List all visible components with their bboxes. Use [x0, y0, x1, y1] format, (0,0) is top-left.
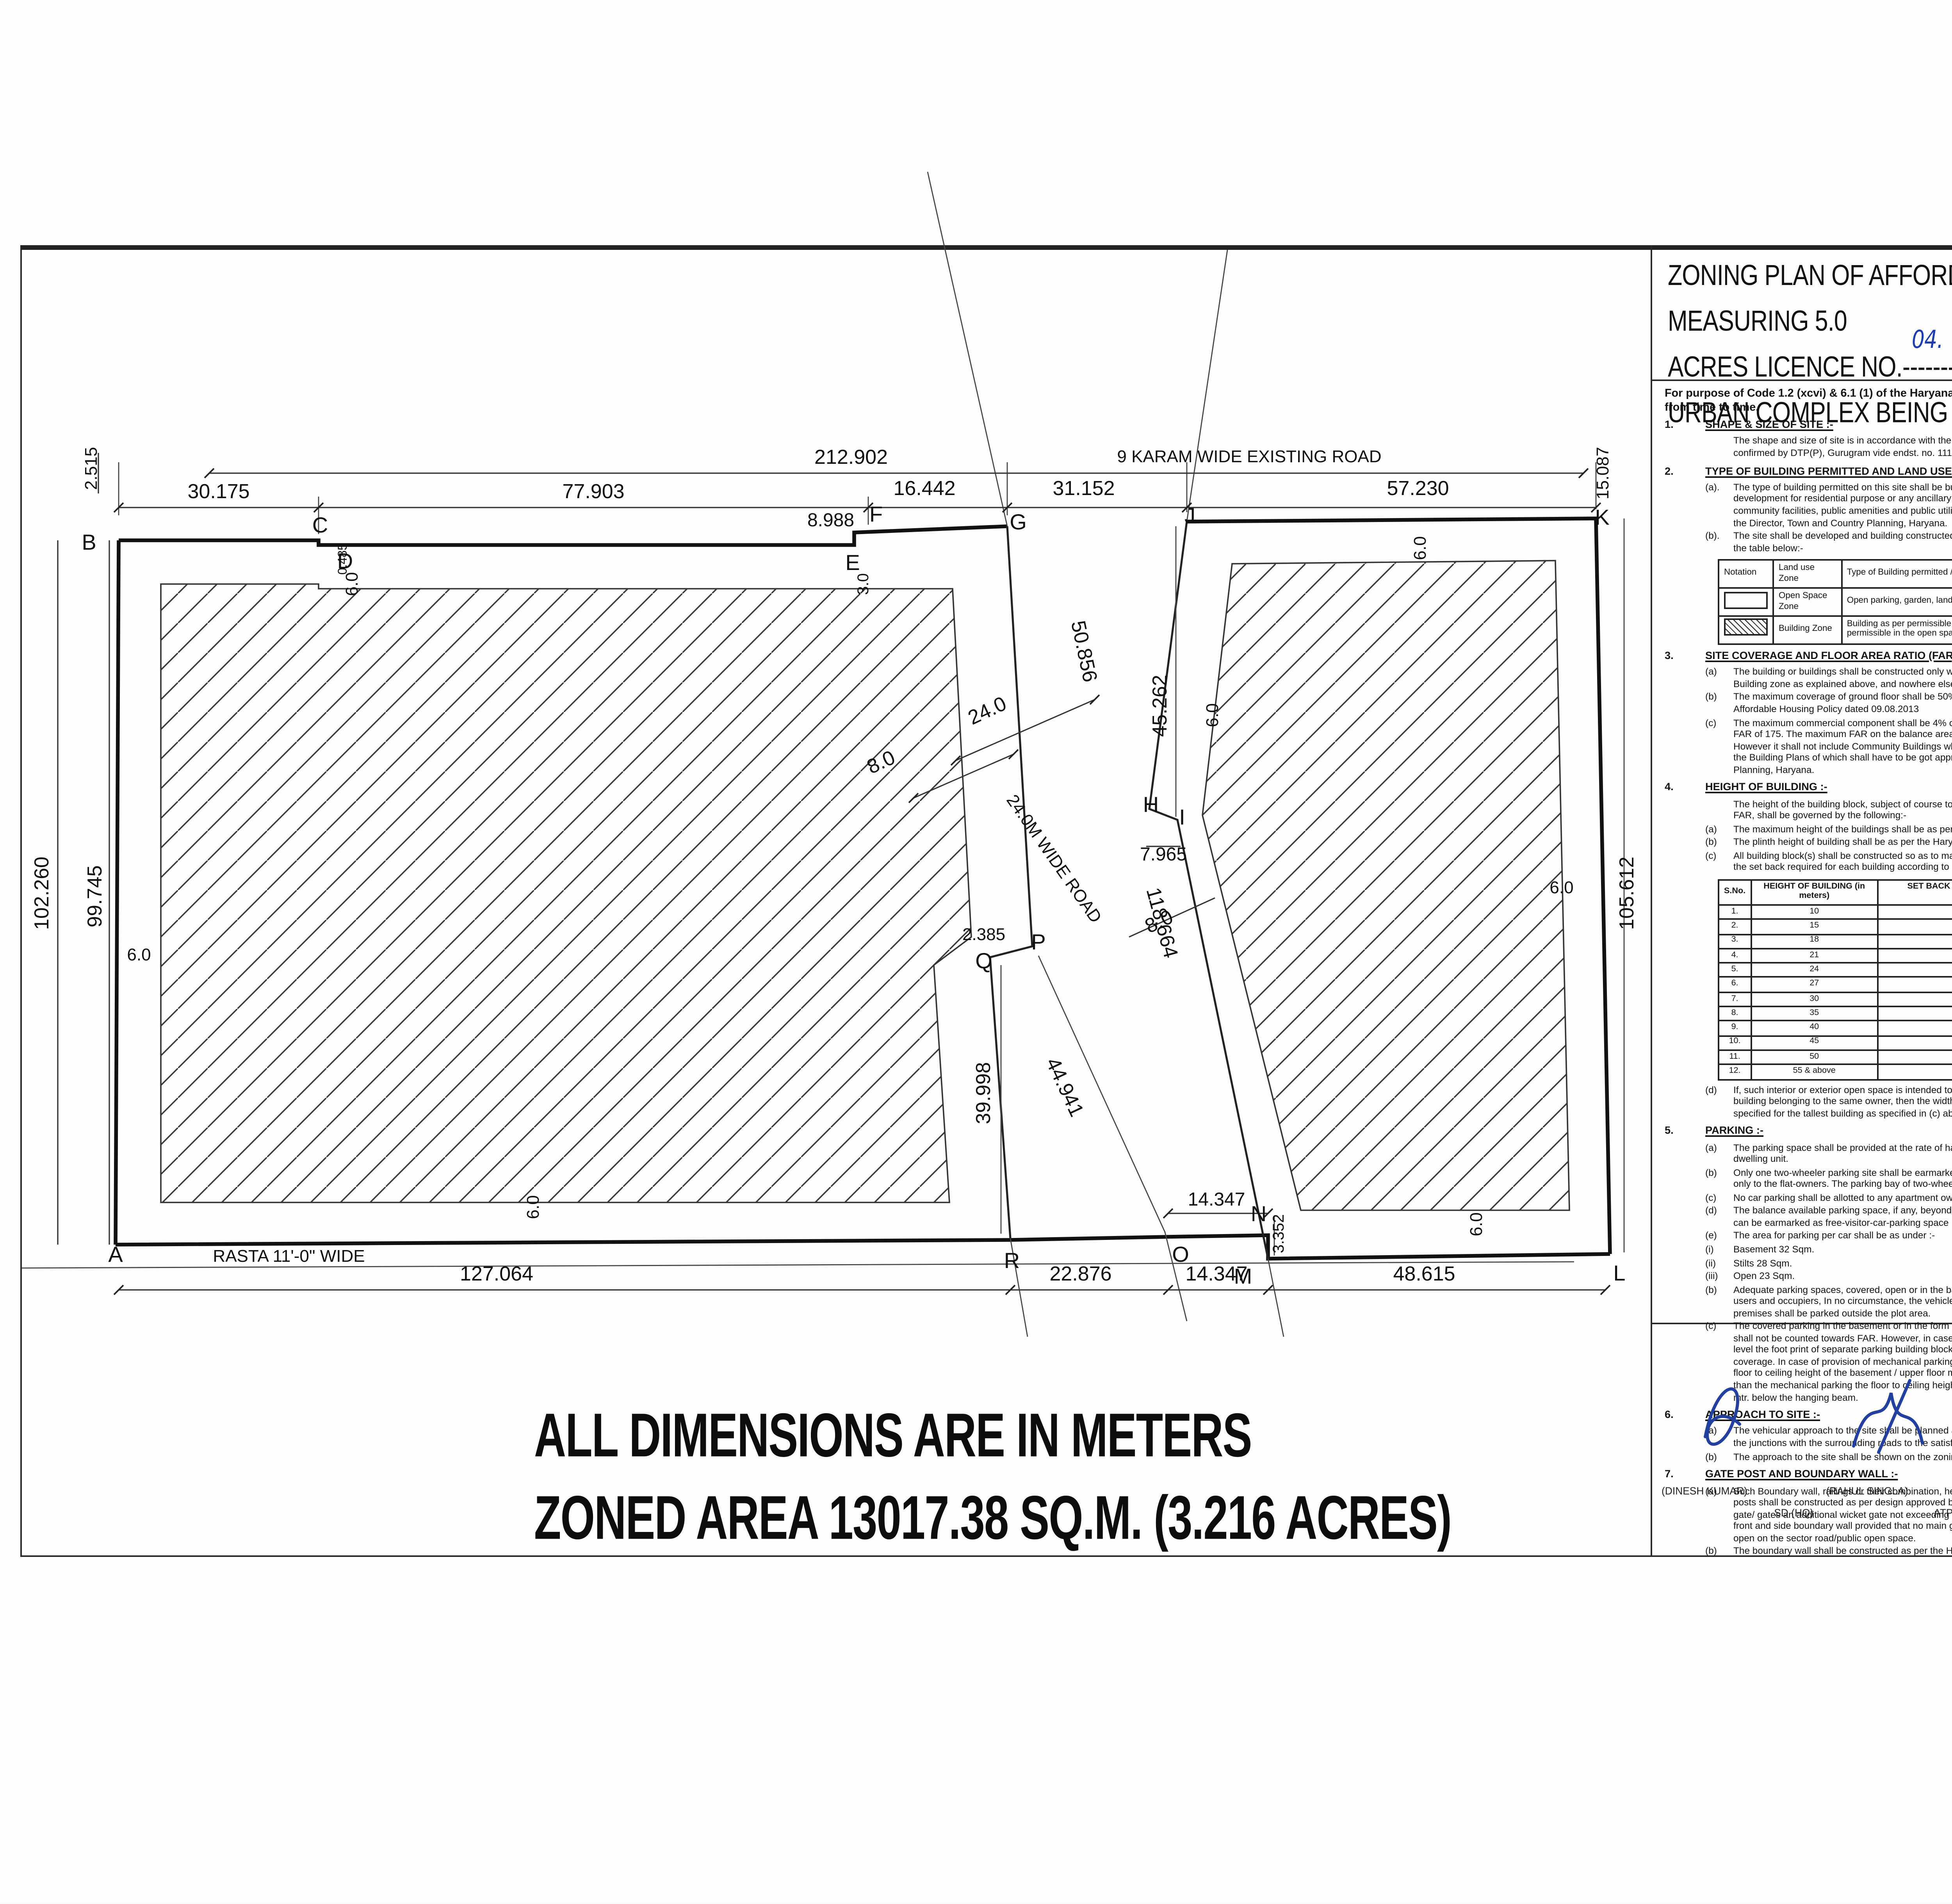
- setback-cell: 9: [1877, 978, 1952, 992]
- setback-cell: 5.: [1719, 963, 1751, 978]
- signature-row: (DINESH KUMAR)SD (HQ)(RAHUL SINGLA)ATP (…: [1658, 1327, 1952, 1546]
- land-use-header: Type of Building permitted / permissible…: [1842, 560, 1952, 588]
- setback-row: 2.155: [1719, 919, 1952, 934]
- clause-text: The maximum height of the buildings shal…: [1733, 824, 1952, 836]
- zone-name: Building Zone: [1773, 616, 1842, 644]
- signatory-designation: SD (HQ): [1774, 1509, 1813, 1519]
- clause-marker: (b): [1705, 693, 1733, 716]
- setback-cell: 2.: [1719, 919, 1751, 934]
- setback-row: 1.103: [1719, 905, 1952, 919]
- clause-marker: (e): [1705, 1231, 1733, 1243]
- clause: (a)The parking space shall be provided a…: [1705, 1142, 1952, 1166]
- clause: (a).The type of building permitted on th…: [1705, 483, 1952, 530]
- clause-marker: [1705, 799, 1733, 823]
- clause-text: Open 23 Sqm.: [1733, 1271, 1952, 1283]
- clause-marker: (a).: [1705, 483, 1733, 530]
- setback-cell: 7.: [1719, 992, 1751, 1006]
- section-heading: TYPE OF BUILDING PERMITTED AND LAND USES…: [1705, 466, 1952, 479]
- clause-text: The shape and size of site is in accorda…: [1733, 436, 1952, 460]
- zone-type: Open parking, garden, landscaping featur…: [1842, 588, 1952, 616]
- title-line2-seg1: ACRES LICENCE NO.: [1668, 352, 1902, 384]
- clause: (a)The building or buildings shall be co…: [1705, 667, 1952, 691]
- setback-cell: 8.: [1719, 1006, 1751, 1021]
- setback-cell: 10: [1751, 905, 1877, 919]
- clause-text: The type of building permitted on this s…: [1733, 483, 1952, 530]
- clause-marker: (b): [1705, 837, 1733, 849]
- clause: (b)The maximum coverage of ground floor …: [1705, 693, 1952, 716]
- drawing-title: ZONING PLAN OF AFFORDABLE GROUP HOUSING …: [1668, 255, 1952, 403]
- setback-cell: 10: [1877, 992, 1952, 1006]
- clause-marker: (i): [1705, 1245, 1733, 1256]
- clause: (c)All building block(s) shall be constr…: [1705, 851, 1952, 874]
- note-line-1: ALL DIMENSIONS ARE IN METERS: [534, 1395, 1451, 1477]
- setback-cell: 14: [1877, 1050, 1952, 1065]
- signatory-name: (RAHUL SINGLA): [1826, 1487, 1908, 1498]
- clause-marker: (ii): [1705, 1258, 1733, 1270]
- setback-cell: 27: [1751, 978, 1877, 992]
- clause-text: The building or buildings shall be const…: [1733, 667, 1952, 691]
- section-number: 2.: [1665, 466, 1705, 479]
- signatory-name: (DINESH KUMAR): [1662, 1487, 1747, 1498]
- clause-marker: (b).: [1705, 531, 1733, 555]
- setback-cell: 3: [1877, 905, 1952, 919]
- setback-cell: 11: [1877, 1006, 1952, 1021]
- clause-marker: (b): [1705, 1168, 1733, 1191]
- land-use-header: Notation: [1719, 560, 1773, 588]
- clause: (b)The boundary wall shall be constructe…: [1705, 1546, 1952, 1558]
- setback-row: 10.4513: [1719, 1036, 1952, 1050]
- setback-row: 8.3511: [1719, 1006, 1952, 1021]
- setback-row: 6.279: [1719, 978, 1952, 992]
- clause-marker: [1705, 436, 1733, 460]
- clause: (ii)Stilts 28 Sqm.: [1705, 1258, 1952, 1270]
- setback-cell: 9.: [1719, 1021, 1751, 1035]
- setback-row: 4.217: [1719, 948, 1952, 963]
- setback-cell: 30: [1751, 992, 1877, 1006]
- clause-marker: (a): [1705, 667, 1733, 691]
- clause-marker: (iii): [1705, 1271, 1733, 1283]
- scanned-sheet: LC-3747 ZONING PLAN OF AFFORDABLE GROUP …: [0, 0, 1952, 1904]
- setback-cell: 1.: [1719, 905, 1751, 919]
- setback-header: S.No.: [1719, 880, 1751, 905]
- zoning-plan-sheet: LC-3747 ZONING PLAN OF AFFORDABLE GROUP …: [0, 0, 1952, 1904]
- clause-text: All building block(s) shall be construct…: [1733, 851, 1952, 874]
- section-number: 4.: [1665, 783, 1705, 796]
- clause: (d)If, such interior or exterior open sp…: [1705, 1085, 1952, 1120]
- clause: (c)The maximum commercial component shal…: [1705, 718, 1952, 777]
- clause: (i)Basement 32 Sqm.: [1705, 1245, 1952, 1256]
- licence-no-slot: -----------04.: [1902, 346, 1952, 392]
- clause-text: The maximum commercial component shall b…: [1733, 718, 1952, 777]
- setback-header: SET BACK / OPEN SPACE TO BE LEFTAROUND B…: [1877, 880, 1952, 905]
- clause-marker: (c): [1705, 718, 1733, 777]
- clause: (c)No car parking shall be allotted to a…: [1705, 1193, 1952, 1204]
- section-heading: HEIGHT OF BUILDING :-: [1705, 783, 1827, 796]
- setback-cell: 55 & above: [1751, 1065, 1877, 1079]
- setback-cell: 12.: [1719, 1065, 1751, 1079]
- clause: (e)The area for parking per car shall be…: [1705, 1231, 1952, 1243]
- land-use-row: Building ZoneBuilding as per permissible…: [1719, 616, 1952, 644]
- zone-name: Open Space Zone: [1773, 588, 1842, 616]
- setback-row: 9.4012: [1719, 1021, 1952, 1035]
- setback-table: S.No.HEIGHT OF BUILDING (in meters)SET B…: [1718, 879, 1952, 1080]
- setback-cell: 12: [1877, 1021, 1952, 1035]
- setback-cell: 4.: [1719, 948, 1751, 963]
- clause-text: No car parking shall be allotted to any …: [1733, 1193, 1952, 1204]
- setback-cell: 6.: [1719, 978, 1751, 992]
- note-line-2: ZONED AREA 13017.38 SQ.M. (3.216 ACRES): [534, 1477, 1451, 1559]
- clause-marker: (d): [1705, 1085, 1733, 1120]
- zone-type: Building as per permissible land use in …: [1842, 616, 1952, 644]
- dimensions-note: ALL DIMENSIONS ARE IN METERS ZONED AREA …: [534, 1395, 1451, 1559]
- clause: The height of the building block, subjec…: [1705, 799, 1952, 823]
- setback-row: 3.186: [1719, 934, 1952, 948]
- clause-text: Basement 32 Sqm.: [1733, 1245, 1952, 1256]
- clause: (b)The plinth height of building shall b…: [1705, 837, 1952, 849]
- setback-cell: 16: [1877, 1065, 1952, 1079]
- section-heading: SHAPE & SIZE OF SITE :-: [1705, 420, 1833, 433]
- clause-text: If, such interior or exterior open space…: [1733, 1085, 1952, 1120]
- clause-marker: (a): [1705, 1142, 1733, 1166]
- setback-cell: 3.: [1719, 934, 1751, 948]
- intro-paragraph: For purpose of Code 1.2 (xcvi) & 6.1 (1)…: [1665, 386, 1952, 414]
- clause: (b).The site shall be developed and buil…: [1705, 531, 1952, 555]
- section-1: 1.SHAPE & SIZE OF SITE :-The shape and s…: [1665, 420, 1952, 460]
- clause-text: The plinth height of building shall be a…: [1733, 837, 1952, 849]
- clause: (iii)Open 23 Sqm.: [1705, 1271, 1952, 1283]
- panel-divider: [1651, 245, 1653, 1557]
- section-4: 4.HEIGHT OF BUILDING :-The height of the…: [1665, 783, 1952, 1120]
- setback-row: 12.55 & above16: [1719, 1065, 1952, 1079]
- clause-text: The balance available parking space, if …: [1733, 1206, 1952, 1229]
- clause-text: Adequate parking spaces, covered, open o…: [1733, 1284, 1952, 1320]
- section-heading: PARKING :-: [1705, 1126, 1763, 1140]
- setback-row: 11.5014: [1719, 1050, 1952, 1065]
- signature-scribble: [1677, 1340, 1827, 1484]
- signature-scribble: [1842, 1340, 1952, 1484]
- section-heading: SITE COVERAGE AND FLOOR AREA RATIO (FAR)…: [1705, 651, 1952, 664]
- clause-text: The area for parking per car shall be as…: [1733, 1231, 1952, 1243]
- clause-text: The height of the building block, subjec…: [1733, 799, 1952, 823]
- section-number: 5.: [1665, 1126, 1705, 1140]
- setback-cell: 50: [1751, 1050, 1877, 1065]
- setback-cell: 35: [1751, 1006, 1877, 1021]
- hatch-swatch: [1724, 619, 1768, 636]
- clause-text: The boundary wall shall be constructed a…: [1733, 1546, 1952, 1558]
- setback-cell: 40: [1751, 1021, 1877, 1035]
- clause-text: Only one two-wheeler parking site shall …: [1733, 1168, 1952, 1191]
- clause: (b)Adequate parking spaces, covered, ope…: [1705, 1284, 1952, 1320]
- clause-text: The parking space shall be provided at t…: [1733, 1142, 1952, 1166]
- clause: The shape and size of site is in accorda…: [1705, 436, 1952, 460]
- clause-text: Stilts 28 Sqm.: [1733, 1258, 1952, 1270]
- signatory-designation: ATP (HQ): [1934, 1509, 1952, 1519]
- clause: (d)The balance available parking space, …: [1705, 1206, 1952, 1229]
- section-2: 2.TYPE OF BUILDING PERMITTED AND LAND US…: [1665, 466, 1952, 645]
- licence-no-handwritten: 04.: [1912, 319, 1943, 365]
- setback-row: 5.248: [1719, 963, 1952, 978]
- setback-cell: 7: [1877, 948, 1952, 963]
- clause-marker: (c): [1705, 1193, 1733, 1204]
- section-3: 3.SITE COVERAGE AND FLOOR AREA RATIO (FA…: [1665, 651, 1952, 777]
- setback-cell: 45: [1751, 1036, 1877, 1050]
- setback-cell: 8: [1877, 963, 1952, 978]
- clause-marker: (d): [1705, 1206, 1733, 1229]
- setback-cell: 15: [1751, 919, 1877, 934]
- setback-cell: 21: [1751, 948, 1877, 963]
- title-line1: ZONING PLAN OF AFFORDABLE GROUP HOUSING …: [1668, 260, 1952, 338]
- signature-block: (DINESH KUMAR)SD (HQ): [1658, 1327, 1823, 1546]
- setback-cell: 24: [1751, 963, 1877, 978]
- clause-marker: (c): [1705, 851, 1733, 874]
- land-use-table: NotationLand use ZoneType of Building pe…: [1718, 559, 1952, 645]
- clause-marker: (b): [1705, 1284, 1733, 1320]
- land-use-row: Open Space ZoneOpen parking, garden, lan…: [1719, 588, 1952, 616]
- open-swatch: [1724, 591, 1768, 608]
- setback-cell: 5: [1877, 919, 1952, 934]
- signature-block: (RAHUL SINGLA)ATP (HQ): [1823, 1327, 1952, 1546]
- setback-cell: 10.: [1719, 1036, 1751, 1050]
- setback-cell: 13: [1877, 1036, 1952, 1050]
- clause: (b)Only one two-wheeler parking site sha…: [1705, 1168, 1952, 1191]
- land-use-header: Land use Zone: [1773, 560, 1842, 588]
- clause-marker: (a): [1705, 824, 1733, 836]
- clause-marker: (b): [1705, 1546, 1733, 1558]
- setback-cell: 11.: [1719, 1050, 1751, 1065]
- setback-header: HEIGHT OF BUILDING (in meters): [1751, 880, 1877, 905]
- clause-text: The maximum coverage of ground floor sha…: [1733, 693, 1952, 716]
- clause: (a)The maximum height of the buildings s…: [1705, 824, 1952, 836]
- clause-text: The site shall be developed and building…: [1733, 531, 1952, 555]
- setback-row: 7.3010: [1719, 992, 1952, 1006]
- section-number: 3.: [1665, 651, 1705, 664]
- setback-cell: 18: [1751, 934, 1877, 948]
- setback-cell: 6: [1877, 934, 1952, 948]
- section-number: 1.: [1665, 420, 1705, 433]
